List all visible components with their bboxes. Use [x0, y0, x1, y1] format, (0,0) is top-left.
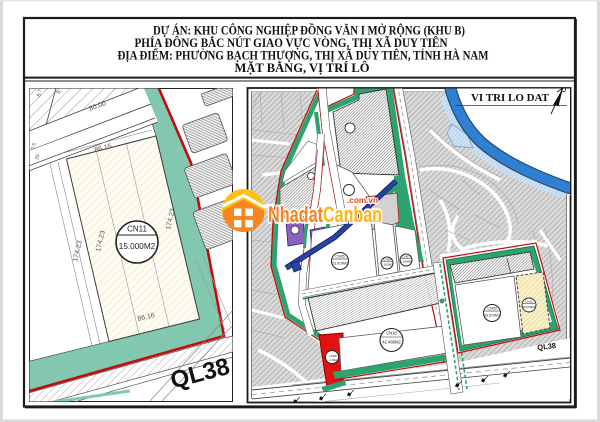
svg-text:2.169M2: 2.169M2 — [400, 260, 412, 264]
svg-text:VI TRI LO DAT: VI TRI LO DAT — [471, 92, 550, 104]
svg-text:Nhadat: Nhadat — [268, 202, 323, 227]
svg-text:39.679M2: 39.679M2 — [484, 314, 500, 318]
svg-text:15.000M2: 15.000M2 — [119, 242, 156, 251]
svg-text:Canban: Canban — [323, 202, 382, 227]
svg-text:MẶT BẰNG, VỊ TRÍ LÔ: MẶT BẰNG, VỊ TRÍ LÔ — [235, 60, 370, 75]
svg-text:23.919M2: 23.919M2 — [332, 262, 348, 266]
svg-text:CN06: CN06 — [383, 258, 391, 262]
svg-text:CN09: CN09 — [487, 307, 496, 311]
svg-text:2.163M2: 2.163M2 — [381, 263, 393, 267]
svg-text:.com.vn: .com.vn — [347, 195, 378, 205]
svg-text:CN10: CN10 — [386, 331, 397, 336]
svg-text:2.2M2: 2.2M2 — [329, 358, 337, 362]
svg-text:CN11: CN11 — [127, 225, 147, 234]
svg-text:CN07: CN07 — [402, 255, 410, 259]
svg-text:15.000M2: 15.000M2 — [522, 305, 536, 309]
svg-text:CN05: CN05 — [335, 255, 344, 259]
svg-text:CN11: CN11 — [525, 300, 533, 304]
svg-text:42.489M2: 42.489M2 — [382, 340, 401, 345]
